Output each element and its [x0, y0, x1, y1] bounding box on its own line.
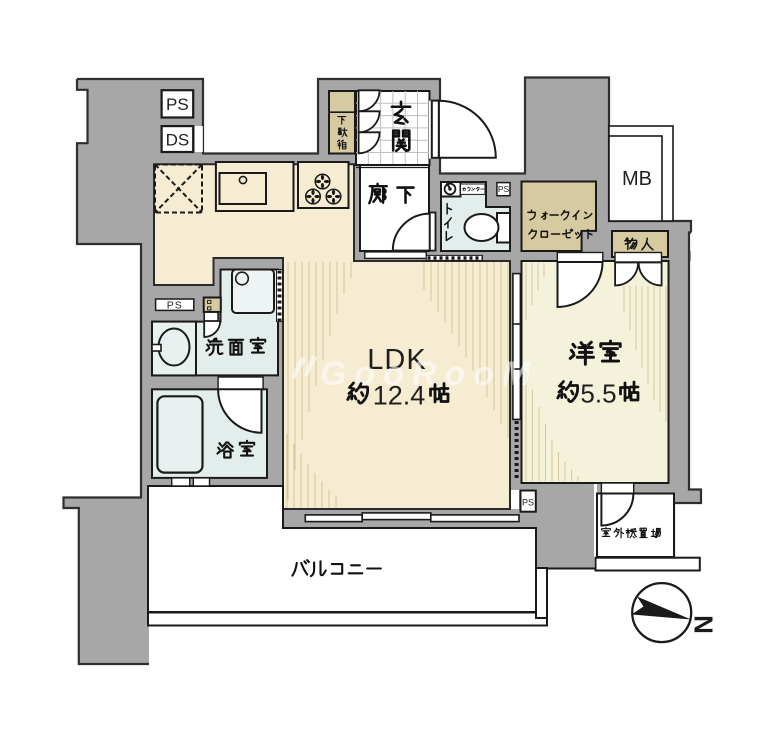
svg-text:PS: PS [522, 498, 534, 508]
svg-text:MB: MB [622, 168, 652, 190]
svg-text:DS: DS [166, 131, 190, 150]
svg-text:PS: PS [498, 184, 510, 194]
svg-text:PS: PS [167, 300, 183, 312]
svg-text:PS: PS [166, 95, 189, 114]
svg-text:5.5: 5.5 [580, 379, 616, 409]
svg-text:N: N [689, 615, 719, 634]
svg-text:12.4: 12.4 [373, 381, 426, 411]
